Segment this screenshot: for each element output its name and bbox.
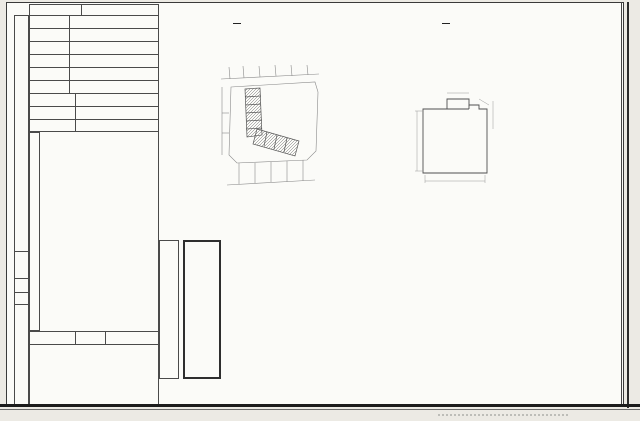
application-block [14,251,29,332]
annex-header-area [105,332,159,344]
floor-plan [403,75,515,207]
annex-table [29,345,159,405]
fine-print-marks [438,414,568,416]
location-map [219,63,331,207]
annex-header-structure [75,332,105,344]
floor-area-table [40,132,159,331]
bottom-rule-thick [0,404,640,407]
lot-number-value [69,42,159,54]
lane-value [69,68,159,80]
address-row-lane [29,68,159,81]
right-rule-inner [621,2,622,406]
certificate-strip [159,240,179,379]
calc-block [307,237,617,317]
site-row-district [29,16,159,29]
certificate-line-2 [185,242,202,377]
license-value [75,120,159,131]
license-row [29,120,159,132]
house-number-value [69,81,159,93]
site-row-lot [29,42,159,55]
certificate-box [183,240,221,379]
survey-date-value [81,4,159,15]
notes [155,379,615,405]
scale-header [183,21,613,43]
annex-header-usage [29,332,75,344]
location-scale-fraction [233,22,241,25]
district-value [69,16,159,28]
survey-form-page [6,2,624,406]
survey-date-label [29,4,81,15]
street-value [69,55,159,67]
survey-date-row [29,4,159,16]
left-side-column [14,15,29,405]
plan-scale-fraction [442,22,450,25]
certificate-line-1 [202,242,219,377]
usage-row [29,107,159,120]
scanned-survey-document: { "topbar": {"survey_label":"測 量 日 期","y… [0,0,640,421]
structure-value [75,94,159,106]
annex-header-row [29,331,159,345]
floor-side-strip [29,132,40,331]
site-row-section [29,29,159,42]
address-row-number [29,81,159,94]
usage-value [75,107,159,119]
section-value [69,29,159,41]
bottom-rule-thin [0,409,640,410]
right-rule-outer [627,2,629,408]
structure-row [29,94,159,107]
address-row-street [29,55,159,68]
